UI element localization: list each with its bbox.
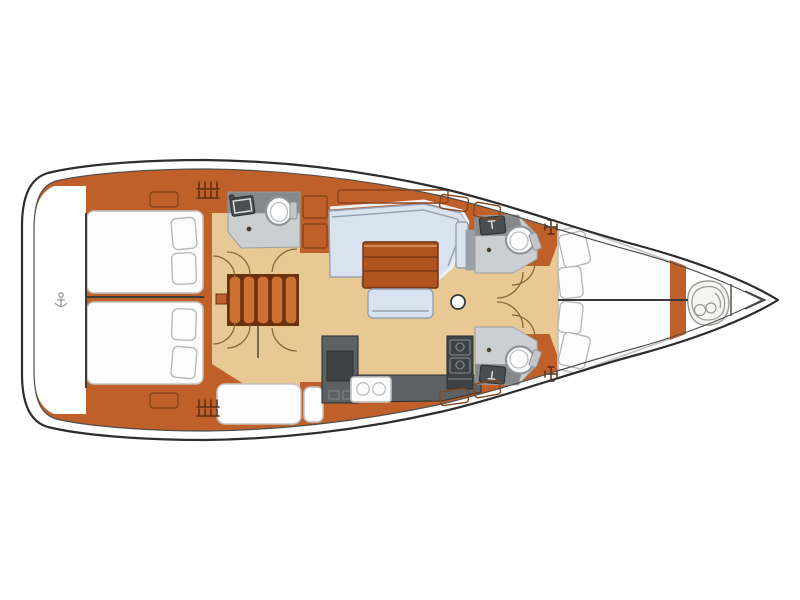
door-knob bbox=[487, 348, 491, 352]
pillow bbox=[171, 253, 196, 285]
door-knob bbox=[247, 227, 252, 232]
companionway-stairs bbox=[216, 274, 299, 326]
yacht-floorplan-canvas bbox=[0, 0, 800, 600]
aft-cabin-starboard bbox=[87, 302, 203, 384]
pillow bbox=[557, 301, 583, 334]
pillow bbox=[171, 217, 198, 250]
salon-bench bbox=[368, 289, 433, 318]
stove-icon bbox=[447, 336, 473, 389]
floorplan-svg bbox=[0, 0, 800, 600]
pillow bbox=[557, 266, 583, 299]
stair-rail-nub bbox=[216, 294, 227, 304]
galley-sink-icon bbox=[351, 377, 391, 402]
settee-arm-side bbox=[466, 230, 475, 270]
aft-cabin-port bbox=[87, 211, 203, 293]
mast-post-icon bbox=[451, 295, 465, 309]
door-knob bbox=[487, 248, 491, 252]
aft-head-port bbox=[228, 192, 300, 248]
salon-table bbox=[363, 242, 438, 288]
side-berth bbox=[217, 384, 323, 424]
pillow bbox=[171, 346, 198, 379]
side-berth-cushion-end bbox=[304, 387, 323, 422]
pillow bbox=[171, 309, 196, 341]
side-berth-cushion-long bbox=[217, 384, 301, 424]
galley-fridge bbox=[327, 351, 353, 381]
